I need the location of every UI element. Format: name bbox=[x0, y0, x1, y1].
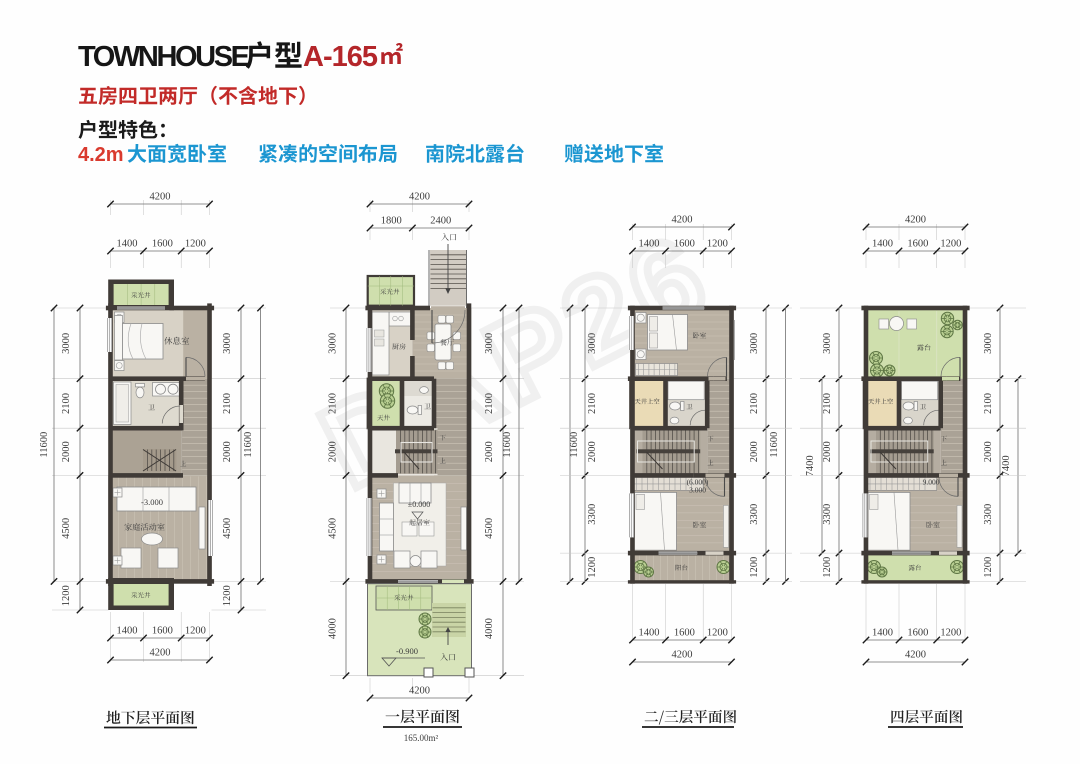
svg-text:1200: 1200 bbox=[749, 557, 760, 578]
svg-text:11600: 11600 bbox=[569, 432, 580, 458]
svg-text:2100: 2100 bbox=[587, 393, 598, 414]
svg-text:1200: 1200 bbox=[185, 239, 206, 250]
svg-text:2100: 2100 bbox=[328, 393, 339, 414]
svg-text:3000: 3000 bbox=[484, 333, 495, 354]
svg-text:1200: 1200 bbox=[61, 585, 72, 606]
svg-text:1200: 1200 bbox=[940, 628, 961, 639]
svg-text:1600: 1600 bbox=[674, 239, 695, 250]
svg-text:4500: 4500 bbox=[222, 518, 233, 539]
svg-text:4200: 4200 bbox=[672, 215, 693, 226]
svg-text:4500: 4500 bbox=[328, 518, 339, 539]
svg-text:2100: 2100 bbox=[749, 393, 760, 414]
svg-text:3000: 3000 bbox=[587, 333, 598, 354]
svg-text:1400: 1400 bbox=[872, 239, 893, 250]
svg-text:4000: 4000 bbox=[484, 618, 495, 639]
svg-text:2100: 2100 bbox=[983, 393, 994, 414]
svg-text:1600: 1600 bbox=[152, 626, 173, 637]
svg-text:1400: 1400 bbox=[639, 628, 660, 639]
svg-text:1400: 1400 bbox=[117, 626, 138, 637]
svg-text:3000: 3000 bbox=[328, 333, 339, 354]
svg-text:4200: 4200 bbox=[905, 650, 926, 661]
svg-text:7400: 7400 bbox=[805, 455, 816, 476]
svg-text:11600: 11600 bbox=[769, 432, 780, 458]
svg-text:A-165: A-165 bbox=[303, 41, 378, 73]
svg-text:3000: 3000 bbox=[983, 333, 994, 354]
svg-text:2100: 2100 bbox=[822, 393, 833, 414]
svg-text:1200: 1200 bbox=[587, 557, 598, 578]
svg-text:2000: 2000 bbox=[749, 441, 760, 462]
svg-text:3300: 3300 bbox=[749, 504, 760, 525]
svg-text:2000: 2000 bbox=[983, 441, 994, 462]
svg-text:1200: 1200 bbox=[707, 628, 728, 639]
svg-text:3300: 3300 bbox=[983, 504, 994, 525]
svg-text:2100: 2100 bbox=[61, 393, 72, 414]
svg-text:1200: 1200 bbox=[822, 557, 833, 578]
svg-text:4200: 4200 bbox=[150, 648, 171, 659]
svg-text:7400: 7400 bbox=[1001, 455, 1012, 476]
svg-text:11600: 11600 bbox=[39, 432, 50, 458]
svg-text:1200: 1200 bbox=[707, 239, 728, 250]
svg-text:2000: 2000 bbox=[822, 441, 833, 462]
svg-text:1600: 1600 bbox=[152, 239, 173, 250]
svg-text:2100: 2100 bbox=[222, 393, 233, 414]
svg-text:1200: 1200 bbox=[983, 557, 994, 578]
svg-text:2000: 2000 bbox=[328, 441, 339, 462]
svg-text:1400: 1400 bbox=[639, 239, 660, 250]
svg-text:4000: 4000 bbox=[328, 618, 339, 639]
svg-text:2100: 2100 bbox=[484, 393, 495, 414]
svg-text:4500: 4500 bbox=[61, 518, 72, 539]
svg-text:1400: 1400 bbox=[872, 628, 893, 639]
svg-text:2400: 2400 bbox=[430, 216, 451, 227]
svg-text:11600: 11600 bbox=[243, 432, 254, 458]
svg-text:3300: 3300 bbox=[822, 504, 833, 525]
svg-text:1200: 1200 bbox=[940, 239, 961, 250]
svg-text:2000: 2000 bbox=[587, 441, 598, 462]
svg-text:4200: 4200 bbox=[150, 192, 171, 203]
svg-text:4.2m: 4.2m bbox=[78, 144, 124, 166]
svg-text:11600: 11600 bbox=[502, 432, 513, 458]
svg-text:3000: 3000 bbox=[822, 333, 833, 354]
svg-text:-0.900: -0.900 bbox=[396, 646, 418, 656]
svg-text:3000: 3000 bbox=[61, 333, 72, 354]
svg-text:3300: 3300 bbox=[587, 504, 598, 525]
svg-text:1600: 1600 bbox=[907, 239, 928, 250]
svg-text:4200: 4200 bbox=[672, 650, 693, 661]
svg-text:2000: 2000 bbox=[222, 441, 233, 462]
svg-text:165.00m²: 165.00m² bbox=[404, 733, 439, 743]
svg-text:1200: 1200 bbox=[185, 626, 206, 637]
svg-text:4200: 4200 bbox=[409, 192, 430, 203]
svg-text:±0.000: ±0.000 bbox=[408, 500, 430, 509]
svg-text:4200: 4200 bbox=[905, 215, 926, 226]
svg-text:1600: 1600 bbox=[907, 628, 928, 639]
svg-text:3.000: 3.000 bbox=[689, 485, 706, 494]
svg-text:-3.000: -3.000 bbox=[141, 497, 163, 507]
svg-text:1400: 1400 bbox=[117, 239, 138, 250]
svg-text:4500: 4500 bbox=[484, 518, 495, 539]
svg-text:1800: 1800 bbox=[381, 216, 402, 227]
svg-text:1200: 1200 bbox=[222, 585, 233, 606]
svg-text:3000: 3000 bbox=[749, 333, 760, 354]
svg-text:TOWNHOUSE: TOWNHOUSE bbox=[78, 41, 250, 73]
svg-text:4200: 4200 bbox=[409, 686, 430, 697]
svg-text:9.000: 9.000 bbox=[923, 477, 940, 486]
svg-text:1600: 1600 bbox=[674, 628, 695, 639]
svg-text:2000: 2000 bbox=[484, 441, 495, 462]
svg-text:2000: 2000 bbox=[61, 441, 72, 462]
svg-text:3000: 3000 bbox=[222, 333, 233, 354]
